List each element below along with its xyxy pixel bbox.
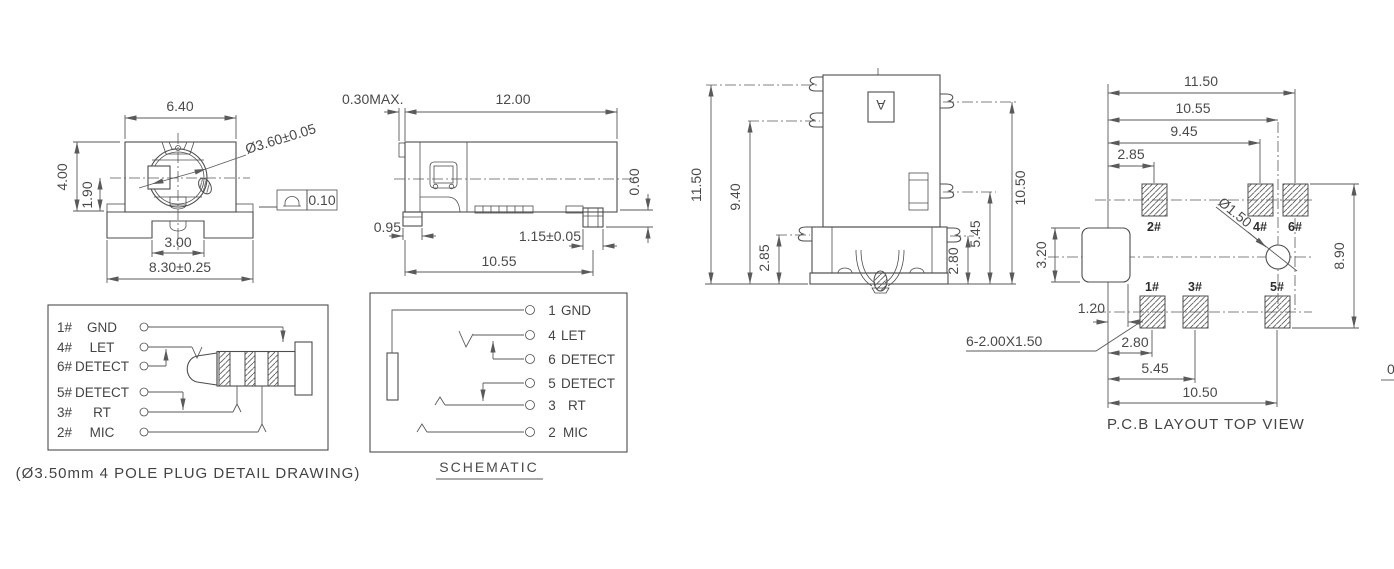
lead-right-bottom — [947, 228, 961, 242]
plug-pin-list: 1# GND 4# LET 6# DETECT 5# DETECT 3# RT … — [57, 320, 148, 440]
pad-3 — [1183, 296, 1208, 328]
plug-tip — [187, 353, 217, 385]
pcb-left-notch — [1082, 228, 1130, 282]
plug-pin-name: GND — [87, 320, 117, 335]
dim-base-width: 8.30±0.25 — [149, 259, 211, 275]
plug-insulator-ring — [245, 352, 255, 387]
pcb-layout-view: 2# 4# 6# 1# 3# 5# 11.50 10.55 9.45 2.85 … — [966, 73, 1359, 433]
dim-back-total-height: 11.50 — [688, 168, 704, 202]
dim-foot-width: 0.95 — [374, 219, 401, 235]
clipped-text: 0 — [1387, 361, 1394, 377]
plug-pin-num: 4# — [57, 340, 73, 355]
front-view: 6.40 4.00 1.90 Ø3.60±0.05 3.00 8.30±0.25… — [54, 98, 337, 283]
ground-spring — [856, 250, 904, 293]
schematic-pins: 1 GND 4 LET 6 DETECT 5 DETECT 3 RT 2 MIC — [526, 303, 616, 440]
dim-pcb-bottom-1: 2.80 — [1121, 334, 1148, 350]
plug-pin-num: 6# — [57, 359, 73, 374]
dim-span: 10.55 — [481, 253, 516, 269]
dim-back-right-low: 2.80 — [945, 247, 961, 274]
side-left-foot — [403, 212, 422, 226]
tolerance-frame: 0.10 — [259, 190, 337, 210]
side-protrusion — [399, 143, 405, 157]
technical-drawing: 6.40 4.00 1.90 Ø3.60±0.05 3.00 8.30±0.25… — [0, 0, 1394, 569]
pad-4 — [1248, 184, 1273, 216]
pad-5 — [1265, 296, 1290, 328]
dim-pcb-bottom-3: 10.50 — [1182, 384, 1217, 400]
plug-pin-num: 5# — [57, 385, 73, 400]
edge-fragment: 0 — [1381, 361, 1394, 380]
schematic-caption: SCHEMATIC — [439, 459, 538, 475]
side-view: 0.30MAX. 12.00 0.60 0.95 1.15±0.05 10.55 — [342, 91, 653, 276]
pad-label-1: 1# — [1145, 280, 1159, 294]
pad-label-4: 4# — [1253, 220, 1267, 234]
plug-pin-name: DETECT — [75, 359, 129, 374]
plug-insulator-ring — [219, 352, 230, 387]
schematic-pin-name: LET — [561, 328, 586, 343]
dim-pcb-bottom-2: 5.45 — [1141, 360, 1168, 376]
back-view-dimensions: 11.50 9.40 2.85 2.80 5.45 10.50 — [688, 85, 1028, 284]
pad-label-3: 3# — [1188, 280, 1202, 294]
pad-label-6: 6# — [1288, 220, 1302, 234]
lead-left-mid — [809, 113, 823, 127]
lead-left-top — [809, 77, 823, 91]
dim-pcb-width-2: 10.55 — [1175, 100, 1210, 116]
plug-detail-caption: (Ø3.50mm 4 POLE PLUG DETAIL DRAWING) — [16, 465, 361, 482]
dim-front-center-height: 1.90 — [79, 181, 95, 208]
pad-1 — [1140, 296, 1165, 328]
plug-pin-name: MIC — [90, 425, 115, 440]
plug-detail: 1# GND 4# LET 6# DETECT 5# DETECT 3# RT … — [16, 305, 361, 482]
dim-pcb-pad-span: 8.90 — [1331, 242, 1347, 269]
profile-of-surface-symbol — [283, 197, 301, 207]
plug-flange — [295, 342, 312, 395]
dim-pcb-width-3: 9.45 — [1170, 123, 1197, 139]
back-view: A 11.50 9.40 — [688, 68, 1028, 293]
pad-6 — [1283, 184, 1308, 216]
schematic: 1 GND 4 LET 6 DETECT 5 DETECT 3 RT 2 MIC… — [370, 293, 627, 479]
lead-left-bottom — [798, 227, 812, 241]
dim-length: 12.00 — [495, 91, 530, 107]
dim-protrusion: 0.30MAX. — [342, 91, 403, 107]
dim-hole-diameter: Ø3.60±0.05 — [243, 120, 318, 157]
front-view-geometry — [107, 133, 253, 250]
schematic-pin-name: RT — [568, 398, 586, 413]
tolerance-value: 0.10 — [308, 192, 335, 208]
dim-back-right-top: 10.50 — [1012, 170, 1028, 205]
lead-right-mid — [940, 184, 954, 198]
pad-label-2: 2# — [1147, 220, 1161, 234]
side-right-foot — [583, 208, 603, 227]
dim-front-width: 6.40 — [166, 98, 193, 114]
dim-front-height: 4.00 — [54, 163, 70, 190]
plug-wiring — [148, 327, 283, 432]
front-view-dimensions: 6.40 4.00 1.90 Ø3.60±0.05 3.00 8.30±0.25… — [54, 98, 337, 283]
schematic-pin-name: DETECT — [561, 376, 615, 391]
dim-back-lead-mid: 9.40 — [727, 183, 743, 210]
schematic-pin-name: DETECT — [561, 352, 615, 367]
dim-pcb-left-offset: 1.20 — [1078, 300, 1105, 316]
orientation-marking: A — [876, 97, 886, 113]
plug-pin-name: LET — [90, 340, 115, 355]
engineering-drawing-sheet: 6.40 4.00 1.90 Ø3.60±0.05 3.00 8.30±0.25… — [0, 0, 1394, 569]
schematic-pin-name: MIC — [563, 425, 588, 440]
schematic-pin-num: 3 — [548, 398, 556, 413]
dim-pad-width: 1.15±0.05 — [519, 228, 581, 244]
side-body-outline — [405, 142, 617, 212]
schematic-pin-num: 1 — [548, 303, 556, 318]
schematic-wiring — [417, 331, 524, 432]
pcb-dimensions: 11.50 10.55 9.45 2.85 8.90 Ø1.50 3.20 1.… — [966, 73, 1359, 407]
plug-insulator-ring — [268, 352, 278, 387]
dim-pcb-width-total: 11.50 — [1184, 73, 1218, 89]
side-view-dimensions: 0.30MAX. 12.00 0.60 0.95 1.15±0.05 10.55 — [342, 91, 653, 276]
side-view-geometry — [394, 142, 633, 227]
plug-pin-name: DETECT — [75, 385, 129, 400]
schematic-pin-name: GND — [561, 303, 591, 318]
dim-back-lead-low: 2.85 — [756, 244, 772, 271]
schematic-pin-num: 6 — [548, 352, 556, 367]
dim-pcb-width-4: 2.85 — [1117, 146, 1144, 162]
schematic-pin-num: 2 — [548, 425, 556, 440]
plug-drawing — [187, 342, 312, 395]
plug-pin-num: 3# — [57, 405, 73, 420]
dim-notch-width: 3.00 — [164, 234, 191, 250]
dim-pcb-notch-height: 3.20 — [1033, 241, 1049, 268]
schematic-pin-num: 5 — [548, 376, 556, 391]
pcb-pad-note: 6-2.00X1.50 — [966, 333, 1042, 349]
lead-right-top — [940, 94, 954, 108]
dim-back-right-mid: 5.45 — [967, 220, 983, 247]
mounting-hole — [1266, 245, 1290, 269]
pcb-caption: P.C.B LAYOUT TOP VIEW — [1107, 416, 1305, 433]
plug-pin-name: RT — [93, 405, 111, 420]
plug-pin-num: 1# — [57, 320, 73, 335]
pad-label-5: 5# — [1270, 280, 1284, 294]
pad-2 — [1142, 184, 1167, 216]
plug-pin-num: 2# — [57, 425, 73, 440]
back-view-geometry: A — [706, 68, 1018, 293]
dim-standoff: 0.60 — [626, 168, 642, 195]
schematic-pin-num: 4 — [548, 328, 556, 343]
jack-sleeve-symbol — [387, 353, 398, 400]
